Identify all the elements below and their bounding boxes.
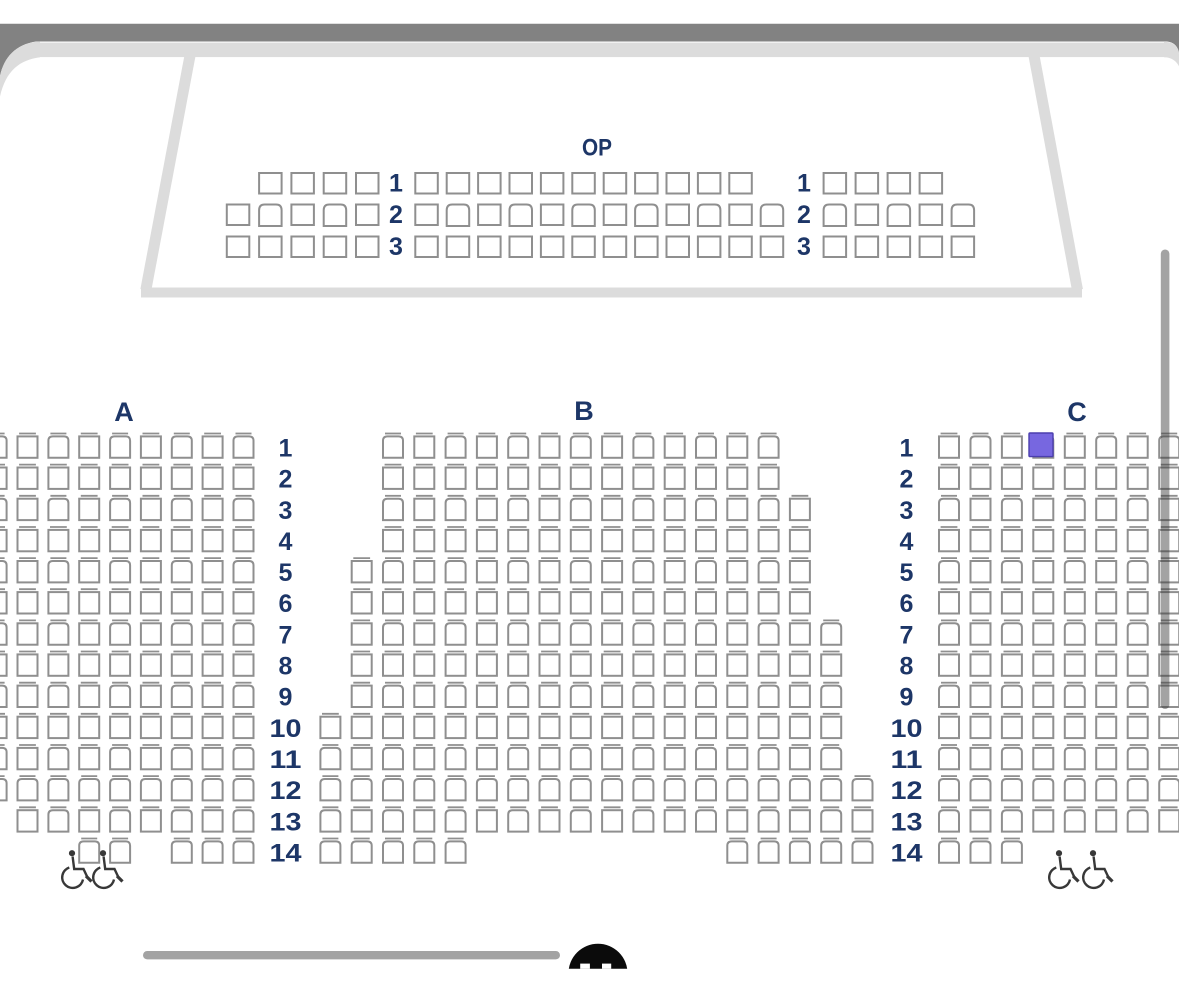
svg-text:5: 5 [279,559,293,587]
svg-text:B: B [574,396,594,426]
svg-text:A: A [114,397,134,427]
svg-text:2: 2 [389,201,403,229]
svg-text:2: 2 [797,201,811,229]
svg-text:14: 14 [270,840,302,868]
svg-text:7: 7 [900,621,914,649]
svg-text:11: 11 [270,746,302,774]
svg-text:3: 3 [797,233,811,261]
svg-text:3: 3 [389,233,403,261]
svg-text:C: C [1067,397,1087,427]
svg-text:4: 4 [279,528,293,556]
svg-text:2: 2 [279,466,293,494]
svg-text:1: 1 [797,170,811,198]
svg-text:2: 2 [900,466,914,494]
svg-text:12: 12 [270,777,302,805]
svg-text:4: 4 [900,528,914,556]
svg-text:9: 9 [279,684,293,712]
svg-text:13: 13 [270,808,302,836]
svg-text:5: 5 [900,559,914,587]
svg-text:OP: OP [582,135,612,162]
svg-text:7: 7 [279,621,293,649]
svg-text:9: 9 [900,684,914,712]
svg-text:11: 11 [891,746,923,774]
svg-text:10: 10 [270,715,302,743]
svg-text:1: 1 [279,435,293,463]
svg-text:1: 1 [900,435,914,463]
svg-text:10: 10 [891,715,923,743]
svg-text:6: 6 [900,590,914,618]
svg-text:12: 12 [891,777,923,805]
svg-text:8: 8 [900,653,914,681]
svg-text:1: 1 [389,170,403,198]
svg-text:14: 14 [891,840,923,868]
svg-text:13: 13 [891,808,923,836]
svg-text:3: 3 [279,497,293,525]
svg-text:6: 6 [279,590,293,618]
svg-text:8: 8 [279,653,293,681]
svg-text:3: 3 [900,497,914,525]
